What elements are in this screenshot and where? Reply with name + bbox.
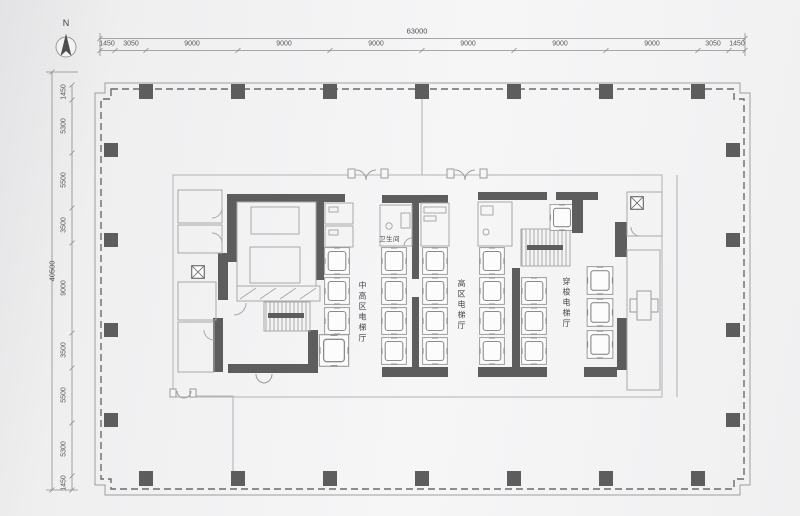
elevator-icon [382,338,407,365]
north-label: N [63,18,70,28]
dimension-total-left: 40500 [48,261,57,282]
elevator-icon [522,308,547,335]
elevator-icon [522,338,547,365]
dimension-label: 9000 [61,280,68,296]
elevator-icon [587,299,613,327]
shaft-xbox-icon [192,266,205,279]
dimension-label: 5500 [61,172,68,188]
label-shuttle-elevator-hall: 穿梭电梯厅 [560,277,572,330]
elevator-icon [382,308,407,335]
elevator-icon [587,267,613,295]
north-compass-icon [56,34,76,58]
dimension-label: 5300 [61,118,68,134]
elevator-icon [480,248,505,275]
dimension-label: 1450 [61,475,68,491]
elevator-icon [423,308,448,335]
double-door-cross [630,291,658,320]
floor-plan-drawing [0,0,800,516]
label-restroom: 卫生间 [379,233,400,243]
elevator-icon [423,248,448,275]
dimension-label: 9000 [460,41,476,48]
dimension-label: 1450 [729,41,745,48]
dimension-label: 3050 [123,41,139,48]
shaft-xbox-icon [631,197,644,210]
label-high-elevator-hall: 高区电梯厅 [455,279,467,332]
elevator-icon [522,278,547,305]
dimension-label: 9000 [184,41,200,48]
core-block-mid-high-bank [380,195,449,377]
elevator-icon [325,278,350,305]
core-block-left [178,190,353,373]
dimension-label: 5500 [61,387,68,403]
label-mid-high-elevator-hall: 中高区电梯厅 [356,281,368,344]
dimension-label: 5300 [61,441,68,457]
dimension-label: 9000 [276,41,292,48]
elevator-icon [480,308,505,335]
elevator-icon [423,278,448,305]
elevator-icon [325,308,350,335]
dimension-label: 9000 [644,41,660,48]
freight-elevator-icon [319,335,348,367]
dimension-label: 9000 [368,41,384,48]
dimension-label: 1450 [99,41,115,48]
dimension-label: 3500 [61,217,68,233]
elevator-icon [480,278,505,305]
elevator-icon [382,248,407,275]
elevator-icon [423,338,448,365]
dimension-label: 3500 [61,342,68,358]
elevator-icon [325,248,350,275]
elevator-icon [480,338,505,365]
dimension-label: 9000 [552,41,568,48]
dimension-total-top: 63000 [407,27,428,36]
dimension-label: 3050 [705,41,721,48]
elevator-icon [550,205,574,231]
floor-plan-page: N 63000 1450 3050 9000 9000 9000 9000 90… [0,0,800,516]
elevator-icon [382,278,407,305]
elevator-icon [587,331,613,359]
dimension-label: 1450 [61,84,68,100]
